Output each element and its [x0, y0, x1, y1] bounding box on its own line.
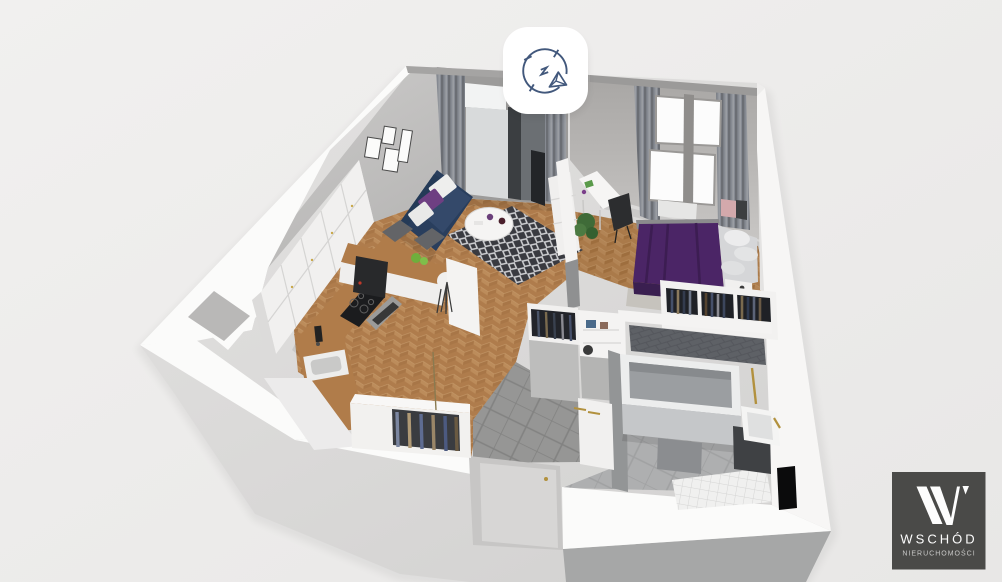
svg-text:NIERUCHOMOŚCI: NIERUCHOMOŚCI — [902, 549, 975, 558]
svg-text:WSCHÓD: WSCHÓD — [900, 532, 977, 547]
